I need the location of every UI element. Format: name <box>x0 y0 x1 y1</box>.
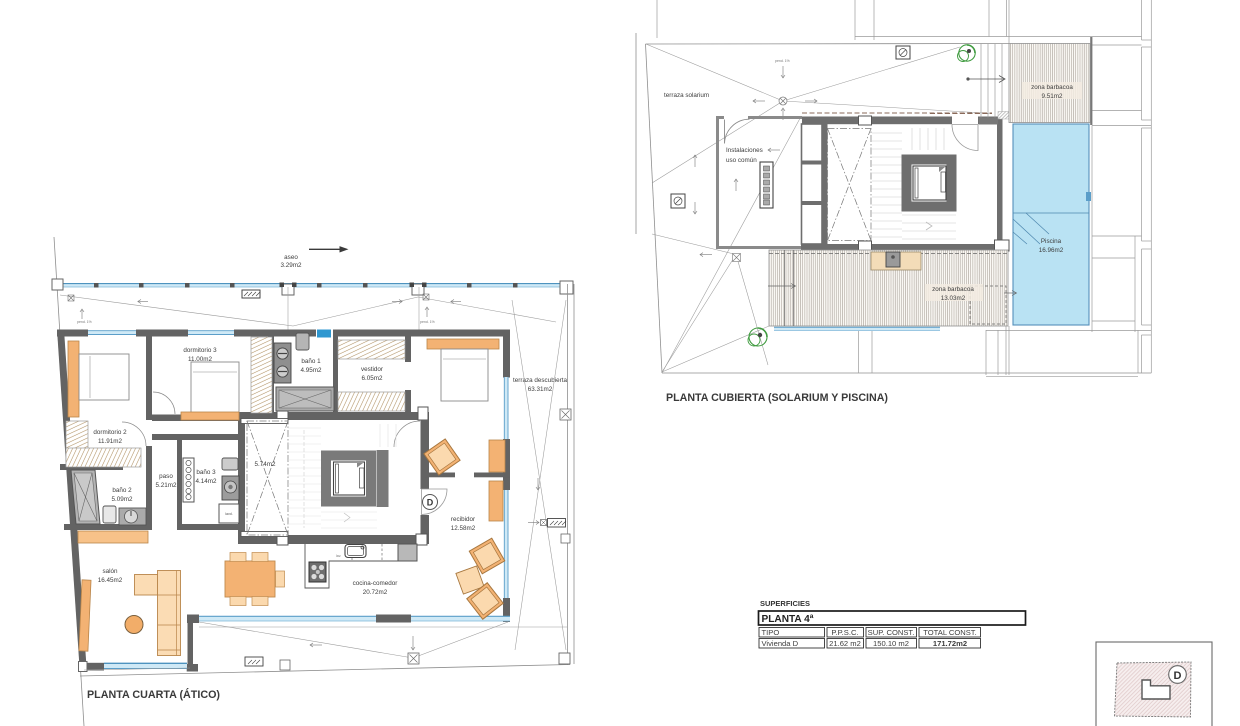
svg-text:13.03m2: 13.03m2 <box>941 295 966 302</box>
svg-text:terraza solarium: terraza solarium <box>664 92 709 99</box>
svg-text:cocina-comedor: cocina-comedor <box>353 580 398 587</box>
svg-text:PLANTA CUARTA (ÁTICO): PLANTA CUARTA (ÁTICO) <box>87 688 220 701</box>
svg-text:20.72m2: 20.72m2 <box>363 589 388 596</box>
svg-text:TOTAL CONST.: TOTAL CONST. <box>923 628 976 637</box>
svg-text:Instalaciones: Instalaciones <box>726 147 763 154</box>
svg-text:SUPERFICIES: SUPERFICIES <box>760 599 810 608</box>
svg-text:Vivienda D: Vivienda D <box>762 639 799 648</box>
svg-text:5.74m2: 5.74m2 <box>254 461 276 468</box>
svg-text:SUP. CONST.: SUP. CONST. <box>868 628 915 637</box>
svg-text:9.51m2: 9.51m2 <box>1041 93 1063 100</box>
svg-text:pend. 1%: pend. 1% <box>775 59 790 63</box>
svg-text:uso común: uso común <box>726 157 757 164</box>
svg-text:recibidor: recibidor <box>451 516 475 523</box>
svg-text:baño 3: baño 3 <box>196 469 216 476</box>
svg-text:16.45m2: 16.45m2 <box>98 577 123 584</box>
svg-text:pend. 1%: pend. 1% <box>77 320 92 324</box>
svg-text:6.05m2: 6.05m2 <box>361 375 383 382</box>
svg-text:16.96m2: 16.96m2 <box>1039 247 1064 254</box>
svg-text:21.62 m2: 21.62 m2 <box>829 639 861 648</box>
svg-text:5.21m2: 5.21m2 <box>155 482 177 489</box>
svg-text:lavd.: lavd. <box>225 512 233 516</box>
svg-text:63.31m2: 63.31m2 <box>528 386 553 393</box>
svg-text:paso: paso <box>159 473 173 480</box>
svg-text:vestidor: vestidor <box>361 366 383 373</box>
svg-text:zona barbacoa: zona barbacoa <box>1031 84 1073 91</box>
svg-text:D: D <box>1174 670 1182 682</box>
svg-text:salón: salón <box>102 568 118 575</box>
svg-text:150.10 m2: 150.10 m2 <box>873 639 909 648</box>
svg-text:lav.: lav. <box>336 554 341 558</box>
svg-text:3.29m2: 3.29m2 <box>280 262 302 269</box>
svg-text:171.72m2: 171.72m2 <box>933 639 967 648</box>
svg-text:12.58m2: 12.58m2 <box>451 525 476 532</box>
svg-text:baño 2: baño 2 <box>112 487 132 494</box>
svg-text:zona barbacoa: zona barbacoa <box>932 286 974 293</box>
svg-text:aseo: aseo <box>284 254 298 261</box>
svg-text:4.95m2: 4.95m2 <box>300 367 322 374</box>
svg-text:pend. 1%: pend. 1% <box>420 320 435 324</box>
svg-text:11.91m2: 11.91m2 <box>98 438 123 445</box>
svg-text:D: D <box>427 498 434 508</box>
svg-text:4.14m2: 4.14m2 <box>195 478 217 485</box>
svg-text:Piscina: Piscina <box>1041 238 1062 245</box>
svg-text:TIPO: TIPO <box>762 628 780 637</box>
svg-text:PLANTA 4ª: PLANTA 4ª <box>762 614 814 625</box>
svg-text:5.09m2: 5.09m2 <box>111 496 133 503</box>
svg-text:terraza descubierta: terraza descubierta <box>513 377 567 384</box>
svg-text:baño 1: baño 1 <box>301 358 321 365</box>
svg-text:P.P.S.C.: P.P.S.C. <box>831 628 858 637</box>
svg-text:dormitorio 3: dormitorio 3 <box>183 347 217 354</box>
svg-text:dormitorio 2: dormitorio 2 <box>93 429 127 436</box>
svg-text:PLANTA CUBIERTA (SOLARIUM Y PI: PLANTA CUBIERTA (SOLARIUM Y PISCINA) <box>666 392 888 404</box>
